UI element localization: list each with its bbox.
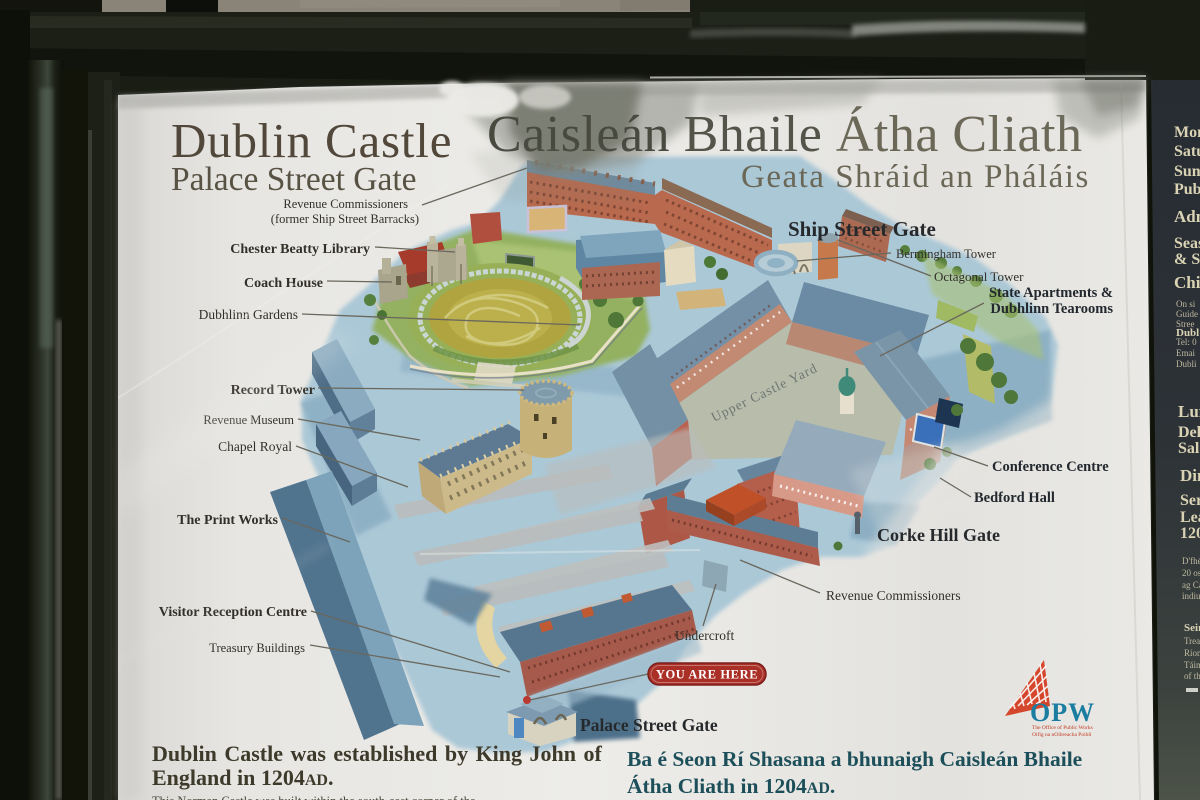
svg-text:State Apartments &: State Apartments & <box>989 285 1113 301</box>
svg-text:Sala: Sala <box>1178 440 1200 457</box>
svg-text:D'fhé: D'fhé <box>1182 556 1200 566</box>
svg-text:Oifig na nOibreacha Poiblí: Oifig na nOibreacha Poiblí <box>1032 731 1092 738</box>
svg-text:Pub: Pub <box>1174 181 1200 198</box>
svg-text:20 os: 20 os <box>1182 568 1200 578</box>
svg-text:Coach House: Coach House <box>244 276 323 291</box>
svg-text:Dublin Castle was established: Dublin Castle was established by King Jo… <box>152 741 602 766</box>
svg-text:Átha Cliath in 1204AD.: Átha Cliath in 1204AD. <box>627 774 835 798</box>
svg-text:Bermingham Tower: Bermingham Tower <box>896 247 997 261</box>
svg-text:Revenue Commissioners: Revenue Commissioners <box>826 588 961 603</box>
svg-text:Treasury Buildings: Treasury Buildings <box>209 641 305 655</box>
svg-text:Chil: Chil <box>1174 273 1200 292</box>
svg-text:Deli: Deli <box>1178 424 1200 441</box>
svg-text:Guide: Guide <box>1176 309 1198 319</box>
svg-text:Palace Street Gate: Palace Street Gate <box>580 715 718 735</box>
svg-text:Palace Street Gate: Palace Street Gate <box>171 161 417 198</box>
svg-text:indiu: indiu <box>1182 591 1200 601</box>
svg-text:& Su: & Su <box>1174 251 1200 268</box>
svg-text:Leat: Leat <box>1180 509 1200 526</box>
svg-text:Revenue Commissioners: Revenue Commissioners <box>283 197 408 211</box>
svg-text:Conference Centre: Conference Centre <box>992 459 1109 475</box>
svg-text:Dublin Castle: Dublin Castle <box>171 113 452 168</box>
svg-text:Ship Street Gate: Ship Street Gate <box>788 217 936 241</box>
svg-text:Seas: Seas <box>1174 235 1200 252</box>
svg-text:Undercroft: Undercroft <box>675 628 734 643</box>
svg-text:Visitor Reception Centre: Visitor Reception Centre <box>159 605 307 620</box>
svg-text:Bedford Hall: Bedford Hall <box>974 490 1055 506</box>
svg-text:Tel: 0: Tel: 0 <box>1176 337 1197 347</box>
svg-text:Geata Shráid an Pháláis: Geata Shráid an Pháláis <box>741 159 1090 195</box>
svg-text:ag Ca: ag Ca <box>1182 580 1200 590</box>
svg-text:of the: of the <box>1184 671 1200 681</box>
svg-text:Octagonal Tower: Octagonal Tower <box>934 269 1024 284</box>
svg-text:Ríomh: Ríomh <box>1184 648 1200 658</box>
svg-text:Corke Hill Gate: Corke Hill Gate <box>877 525 1000 545</box>
svg-text:Treas: Treas <box>1184 636 1200 646</box>
svg-text:Lun: Lun <box>1178 402 1200 421</box>
svg-text:Mon: Mon <box>1174 124 1200 141</box>
svg-text:On si: On si <box>1176 299 1196 309</box>
svg-text:Sun: Sun <box>1174 163 1200 180</box>
svg-text:This Norman Castle was built w: This Norman Castle was built within the … <box>152 794 476 800</box>
svg-text:Adm: Adm <box>1174 207 1200 226</box>
svg-text:Serv: Serv <box>1180 492 1200 509</box>
svg-text:OPW: OPW <box>1030 698 1095 727</box>
svg-text:YOU ARE HERE: YOU ARE HERE <box>656 668 758 682</box>
svg-text:Din: Din <box>1180 466 1200 485</box>
svg-text:Dubhlinn Tearooms: Dubhlinn Tearooms <box>990 301 1113 317</box>
svg-text:The Office of Public Works: The Office of Public Works <box>1032 724 1093 731</box>
svg-text:The Print Works: The Print Works <box>177 513 278 528</box>
svg-text:120: 120 <box>1180 525 1200 542</box>
svg-text:Seir: Seir <box>1184 622 1200 634</box>
svg-text:Dubli: Dubli <box>1176 359 1197 369</box>
svg-text:Stree: Stree <box>1176 319 1195 329</box>
svg-text:Chapel Royal: Chapel Royal <box>218 439 292 454</box>
svg-text:Táim: Táim <box>1184 660 1200 670</box>
svg-text:Ba é Seon Rí Shasana a bhunaig: Ba é Seon Rí Shasana a bhunaigh Caisleán… <box>627 747 1082 771</box>
svg-text:Satu: Satu <box>1174 143 1200 160</box>
svg-text:Emai: Emai <box>1176 348 1195 358</box>
